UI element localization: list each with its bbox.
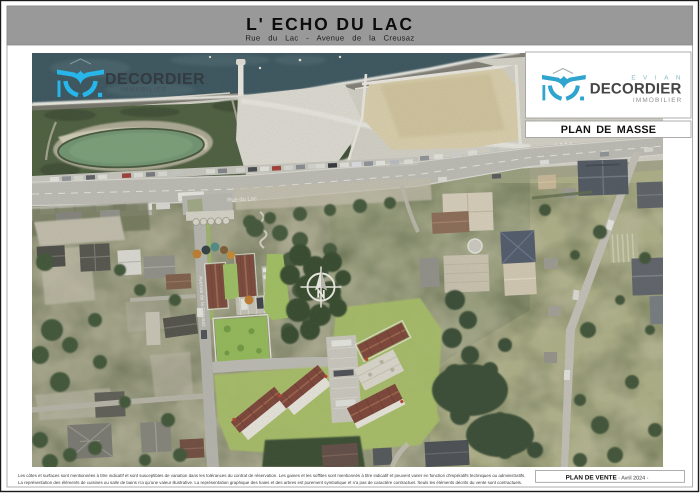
svg-text:Rue du Lac - Avenue de la Creu: Rue du Lac - Avenue de la Creusaz <box>245 34 414 43</box>
svg-text:IMMOBILIER: IMMOBILIER <box>121 87 168 94</box>
svg-text:Les côtes et surfaces sont men: Les côtes et surfaces sont mentionnées à… <box>18 473 525 478</box>
svg-text:IMMOBILIER: IMMOBILIER <box>633 97 683 104</box>
svg-text:L' ECHO DU LAC: L' ECHO DU LAC <box>246 14 414 34</box>
svg-text:La représentation des éléments: La représentation des éléments de cuisin… <box>18 480 522 485</box>
svg-text:PLAN DE MASSE: PLAN DE MASSE <box>561 124 656 136</box>
svg-text:DECORDIER: DECORDIER <box>590 81 682 98</box>
svg-text:PLAN DE VENTE - Avril 2024 -: PLAN DE VENTE - Avril 2024 - <box>566 475 649 482</box>
svg-text:DECORDIER: DECORDIER <box>105 71 205 88</box>
